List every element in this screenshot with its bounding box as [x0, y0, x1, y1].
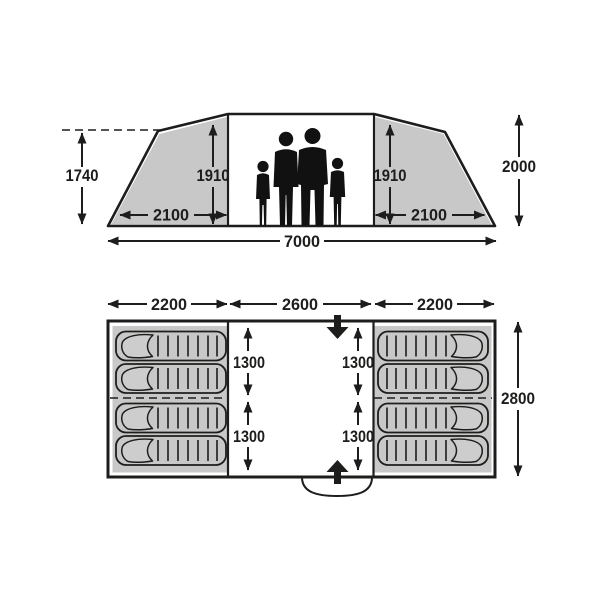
- dim-inner-height-right-label: 1910: [374, 166, 407, 185]
- girl-silhouette: [256, 161, 270, 226]
- dim-center-section-width-label: 2600: [282, 295, 318, 314]
- tent-front-elevation: 1740 1910 1910 2100 2100 2000 7000: [62, 114, 536, 251]
- dim-left-front-depth-label: 1300: [233, 353, 265, 372]
- sleeping-bag: [378, 332, 488, 361]
- sleeping-bag: [116, 436, 226, 465]
- dim-total-height-label: 2000: [502, 157, 536, 176]
- tent-dimensions-diagram: 1740 1910 1910 2100 2100 2000 7000: [0, 0, 600, 600]
- sleeping-bag: [116, 364, 226, 393]
- dim-right-front-depth-label: 1300: [342, 353, 374, 372]
- sleeping-bag: [378, 364, 488, 393]
- dim-bedroom-width-left-label: 2100: [153, 206, 189, 225]
- dim-inner-height-left-label: 1910: [197, 166, 230, 185]
- dim-total-depth-label: 2800: [501, 389, 535, 408]
- dim-peak-height-label: 1740: [66, 166, 99, 185]
- dim-total-width-label: 7000: [284, 232, 320, 251]
- sleeping-bag: [116, 404, 226, 433]
- man-silhouette: [297, 128, 328, 226]
- diagram-canvas: 1740 1910 1910 2100 2100 2000 7000: [0, 0, 600, 600]
- boy-silhouette: [330, 158, 345, 226]
- dim-right-rear-depth-label: 1300: [342, 427, 374, 446]
- sleeping-bag: [378, 404, 488, 433]
- woman-silhouette: [274, 132, 299, 226]
- dim-left-rear-depth-label: 1300: [233, 427, 265, 446]
- dim-bedroom-width-right-label: 2100: [411, 206, 447, 225]
- tent-floor-plan: 2200 2600 2200 2800 1300 1300 1300 1300: [108, 295, 535, 496]
- family-silhouette: [256, 128, 345, 226]
- dim-left-section-width-label: 2200: [151, 295, 187, 314]
- sleeping-bag: [116, 332, 226, 361]
- sleeping-bag: [378, 436, 488, 465]
- dim-right-section-width-label: 2200: [417, 295, 453, 314]
